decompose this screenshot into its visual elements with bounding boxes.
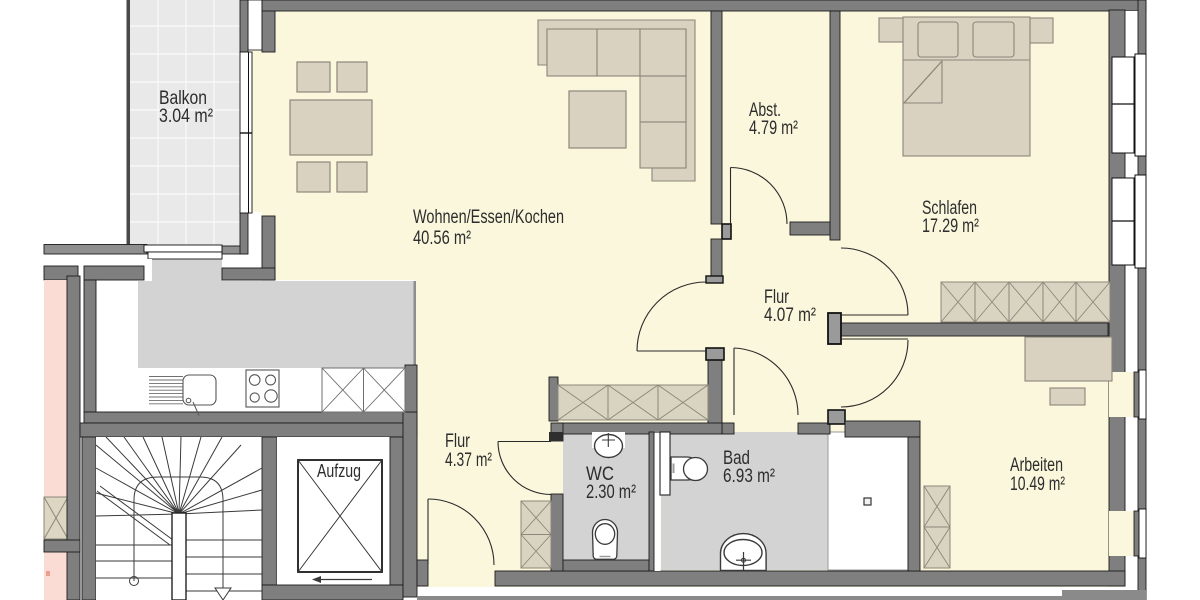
svg-text:4.79 m²: 4.79 m² <box>749 118 798 139</box>
svg-text:4.37 m²: 4.37 m² <box>445 450 492 471</box>
svg-text:10.49 m²: 10.49 m² <box>1010 474 1065 495</box>
svg-text:40.56 m²: 40.56 m² <box>413 228 471 249</box>
svg-text:Aufzug: Aufzug <box>317 461 361 481</box>
svg-text:Wohnen/Essen/Kochen: Wohnen/Essen/Kochen <box>413 207 564 228</box>
svg-text:2.30 m²: 2.30 m² <box>586 482 636 503</box>
svg-text:3.04 m²: 3.04 m² <box>159 106 213 127</box>
svg-text:Arbeiten: Arbeiten <box>1010 455 1063 476</box>
svg-text:6.93 m²: 6.93 m² <box>723 466 775 487</box>
svg-text:4.07 m²: 4.07 m² <box>764 305 816 326</box>
svg-text:17.29 m²: 17.29 m² <box>922 216 979 237</box>
svg-text:Flur: Flur <box>445 431 471 452</box>
